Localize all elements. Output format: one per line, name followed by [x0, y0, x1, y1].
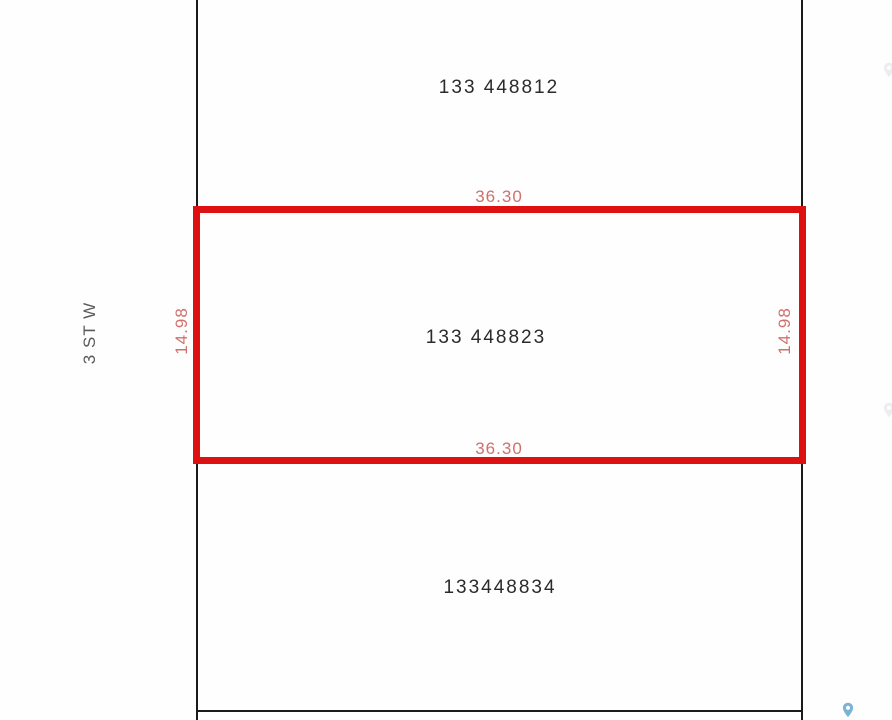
parcel-label-top: 133 448812: [439, 77, 559, 99]
street-label: 3 ST W: [80, 302, 100, 364]
dimension-label-right: 14.98: [775, 307, 795, 355]
dimension-label-top: 36.30: [475, 187, 523, 207]
parcel-label-selected: 133 448823: [426, 327, 546, 349]
parcel-boundary-bottom: [196, 710, 803, 712]
map-pin-icon: [842, 702, 854, 718]
dimension-label-bottom: 36.30: [475, 439, 523, 459]
parcel-region-133448812[interactable]: [198, 0, 801, 206]
parcel-map-canvas[interactable]: 3 ST W 133 448812 133 448823 133448834 3…: [0, 0, 892, 720]
parcel-label-bottom: 133448834: [443, 577, 556, 599]
map-pin-icon-faint: [883, 62, 892, 78]
dimension-label-left: 14.98: [172, 307, 192, 355]
map-pin-icon-faint: [883, 402, 892, 418]
